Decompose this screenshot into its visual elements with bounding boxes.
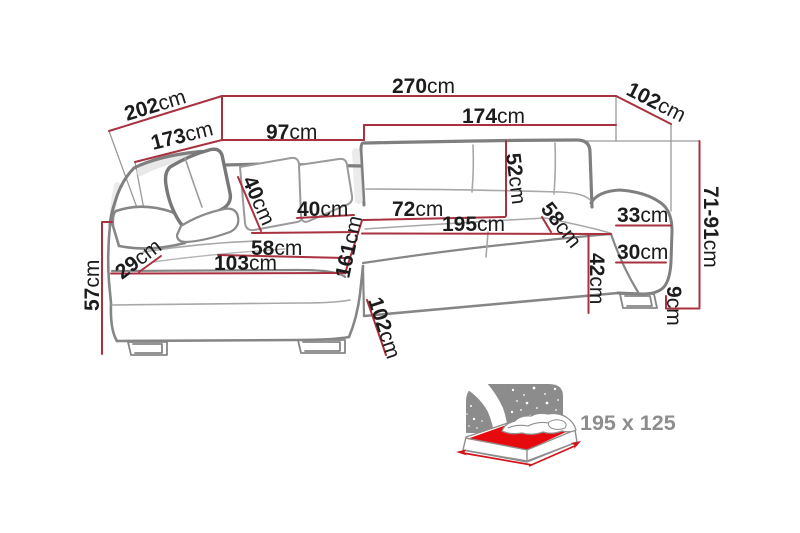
svg-text:174cm: 174cm bbox=[462, 105, 525, 128]
svg-text:40cm: 40cm bbox=[297, 198, 348, 221]
svg-text:270cm: 270cm bbox=[392, 75, 455, 98]
svg-text:71-91cm: 71-91cm bbox=[699, 186, 722, 268]
svg-text:103cm: 103cm bbox=[214, 252, 277, 275]
svg-text:57cm: 57cm bbox=[81, 260, 104, 311]
svg-text:33cm: 33cm bbox=[617, 204, 668, 227]
svg-text:30cm: 30cm bbox=[617, 241, 668, 264]
svg-text:9cm: 9cm bbox=[662, 286, 685, 326]
svg-text:195cm: 195cm bbox=[442, 213, 505, 236]
svg-text:195 x 125: 195 x 125 bbox=[580, 411, 676, 435]
svg-text:97cm: 97cm bbox=[266, 121, 317, 144]
svg-text:72cm: 72cm bbox=[392, 198, 443, 221]
svg-text:42cm: 42cm bbox=[585, 253, 608, 304]
